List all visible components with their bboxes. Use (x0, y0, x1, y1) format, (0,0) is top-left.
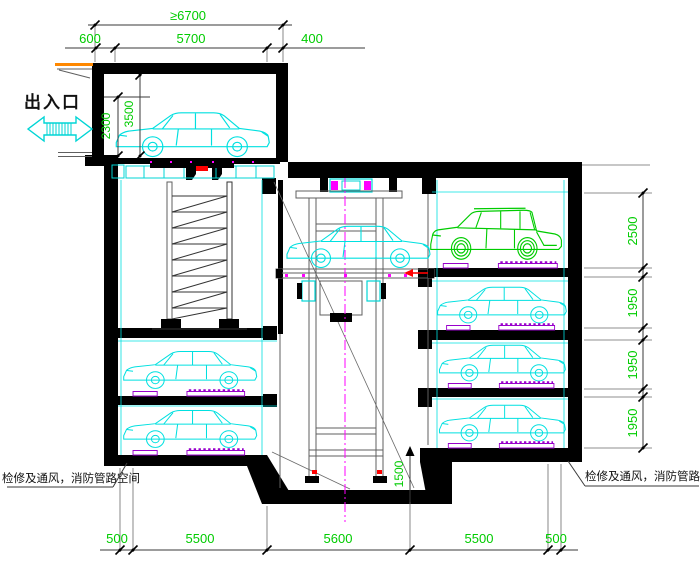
service-space-note-left: 检修及通风，消防管路空间 (2, 463, 140, 487)
service-space-left-label: 检修及通风，消防管路空间 (2, 471, 140, 485)
car-sedan-right-level3 (440, 345, 566, 381)
dim-right-bay-width: 5500 (465, 531, 494, 546)
dim-left-bay-width: 5500 (186, 531, 215, 546)
entrance-right-wall (276, 74, 288, 162)
dim-center-bay-width: 5600 (324, 531, 353, 546)
lift-mast-tower (152, 166, 247, 329)
drawing-canvas: ≥6700 600 5700 400 2300 3500 2500 1950 1… (0, 0, 700, 578)
right-outer-wall (568, 162, 582, 462)
dim-hall-height: 3500 (122, 100, 136, 127)
ground-slab (288, 162, 582, 178)
dim-door-height: 2300 (99, 112, 113, 139)
shaft-left-wall (278, 180, 283, 334)
dim-overall-width: ≥6700 (170, 8, 206, 23)
car-sedan-left-level2 (124, 351, 257, 388)
car-sedan-right-level4 (440, 405, 566, 441)
left-outer-wall (104, 162, 118, 466)
dim-opening-width: 5700 (177, 31, 206, 46)
left-bay-bottom-slab (104, 455, 247, 466)
shaft-left-haunch (262, 178, 276, 194)
entrance-label-group: 出入口 (24, 92, 92, 141)
dim-bottom: 500 5500 5600 5500 500 (100, 464, 578, 555)
entrance-roof-slab (92, 63, 288, 74)
entrance-label: 出入口 (24, 92, 81, 112)
car-suv-right-level1 (431, 208, 562, 259)
dim-bottom-right-offset: 500 (545, 531, 567, 546)
dim-level-1-height: 2500 (625, 217, 640, 246)
car-sedan-on-lift (287, 226, 430, 267)
car-sedan-entrance (116, 113, 269, 157)
dim-top: ≥6700 600 5700 400 (65, 8, 365, 62)
service-space-note-right: 检修及通风，消防管路空间 (568, 461, 700, 486)
pit-bottom-slab (262, 490, 434, 504)
dim-left-overhang: 600 (79, 31, 101, 46)
dim-level-3-height: 1950 (625, 351, 640, 380)
right-bay-slab-1 (418, 268, 582, 277)
dim-lift-pit-depth: 1500 (392, 460, 406, 487)
shaft-lines (272, 182, 428, 489)
two-way-arrow-icon (28, 117, 92, 141)
dim-bottom-left-offset: 500 (106, 531, 128, 546)
dim-level-4-height: 1950 (625, 409, 640, 438)
right-bay-bottom-slab (430, 448, 582, 462)
car-sedan-right-level2 (438, 287, 567, 323)
right-bay-slab-2 (418, 330, 582, 340)
right-bay-slab-3 (418, 388, 582, 397)
left-bay-slab-2 (116, 396, 277, 405)
dim-right-levels: 2500 1950 1950 1950 (582, 165, 652, 453)
dim-right-offset: 400 (301, 31, 323, 46)
service-space-right-label: 检修及通风，消防管路空间 (585, 469, 700, 483)
car-sedan-left-level3 (124, 410, 257, 447)
dim-level-2-height: 1950 (625, 289, 640, 318)
parking-section-drawing: ≥6700 600 5700 400 2300 3500 2500 1950 1… (0, 0, 700, 578)
